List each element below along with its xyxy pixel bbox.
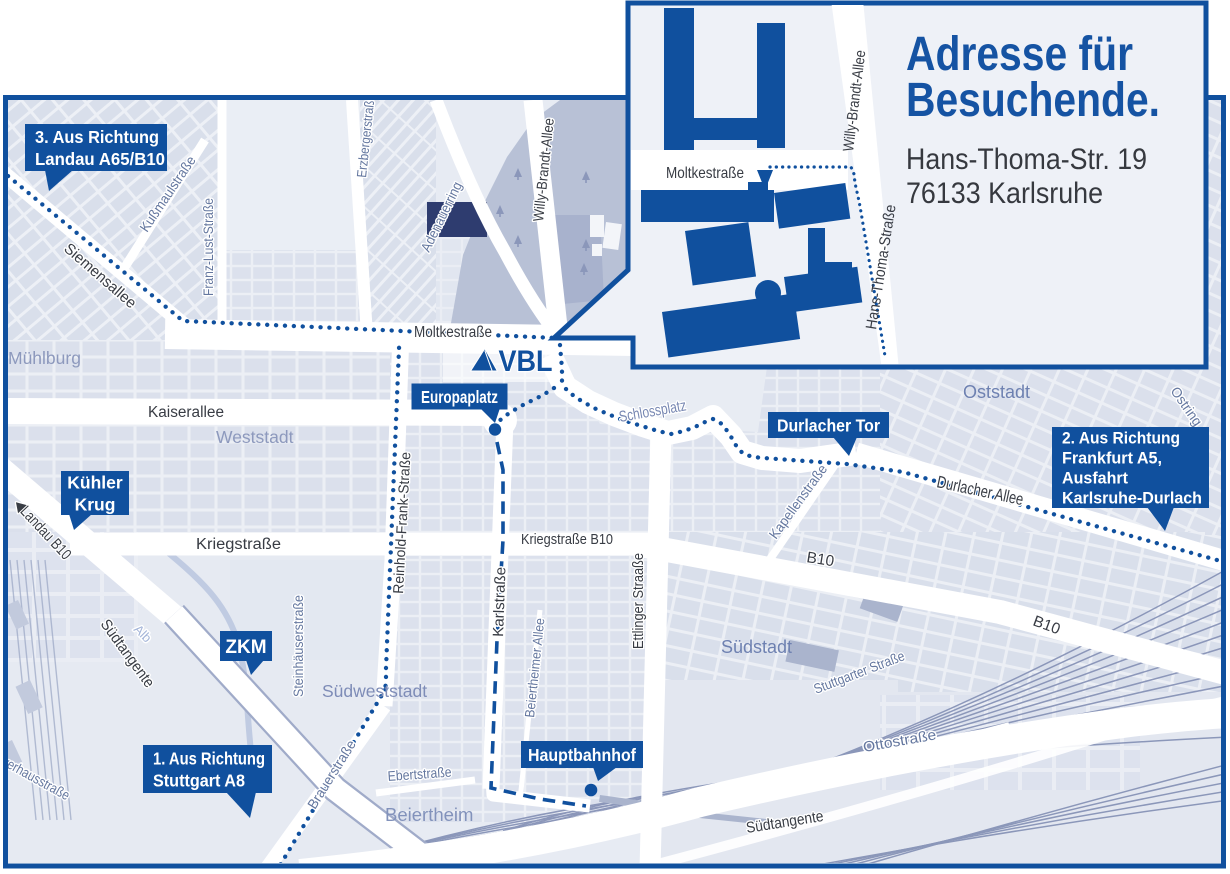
svg-text:Kriegstraße: Kriegstraße <box>196 536 281 553</box>
svg-text:2. Aus Richtung: 2. Aus Richtung <box>1062 429 1180 447</box>
svg-text:1. Aus Richtung: 1. Aus Richtung <box>153 748 265 768</box>
svg-text:Ausfahrt: Ausfahrt <box>1062 469 1128 487</box>
svg-text:Ettlinger Straaße: Ettlinger Straaße <box>630 553 647 649</box>
svg-text:VBL: VBL <box>499 345 553 378</box>
svg-text:Krug: Krug <box>75 494 116 514</box>
svg-text:Steinhäuserstraße: Steinhäuserstraße <box>291 595 306 697</box>
svg-text:Europaplatz: Europaplatz <box>421 387 498 407</box>
svg-text:Oststadt: Oststadt <box>963 382 1030 402</box>
svg-text:Moltkestraße: Moltkestraße <box>666 165 744 182</box>
svg-text:Weststadt: Weststadt <box>216 427 294 447</box>
svg-text:Karlsruhe-Durlach: Karlsruhe-Durlach <box>1062 489 1202 507</box>
svg-text:3. Aus Richtung: 3. Aus Richtung <box>35 127 159 147</box>
svg-text:Karlstraße: Karlstraße <box>490 567 509 638</box>
svg-text:Franz-Lust-Straße: Franz-Lust-Straße <box>201 198 216 296</box>
svg-text:Besuchende.: Besuchende. <box>906 74 1160 127</box>
svg-text:Frankfurt A5,: Frankfurt A5, <box>1062 449 1162 467</box>
svg-text:Kühler: Kühler <box>67 472 123 492</box>
svg-text:Stuttgart A8: Stuttgart A8 <box>153 770 245 790</box>
svg-text:Moltkestraße: Moltkestraße <box>414 324 492 341</box>
svg-text:Kaiserallee: Kaiserallee <box>148 404 224 421</box>
svg-text:76133 Karlsruhe: 76133 Karlsruhe <box>906 177 1103 210</box>
svg-text:Hauptbahnhof: Hauptbahnhof <box>528 745 636 765</box>
svg-text:Südweststadt: Südweststadt <box>322 681 427 701</box>
svg-text:Mühlburg: Mühlburg <box>8 348 81 368</box>
svg-text:Durlacher Tor: Durlacher Tor <box>777 415 880 435</box>
svg-text:Hans-Thoma-Str. 19: Hans-Thoma-Str. 19 <box>906 143 1147 176</box>
svg-text:ZKM: ZKM <box>225 637 266 658</box>
svg-text:Landau A65/B10: Landau A65/B10 <box>35 149 165 169</box>
svg-text:Kriegstraße B10: Kriegstraße B10 <box>521 531 613 548</box>
svg-text:Beiertheim: Beiertheim <box>385 804 473 825</box>
svg-text:Südstadt: Südstadt <box>721 637 792 657</box>
